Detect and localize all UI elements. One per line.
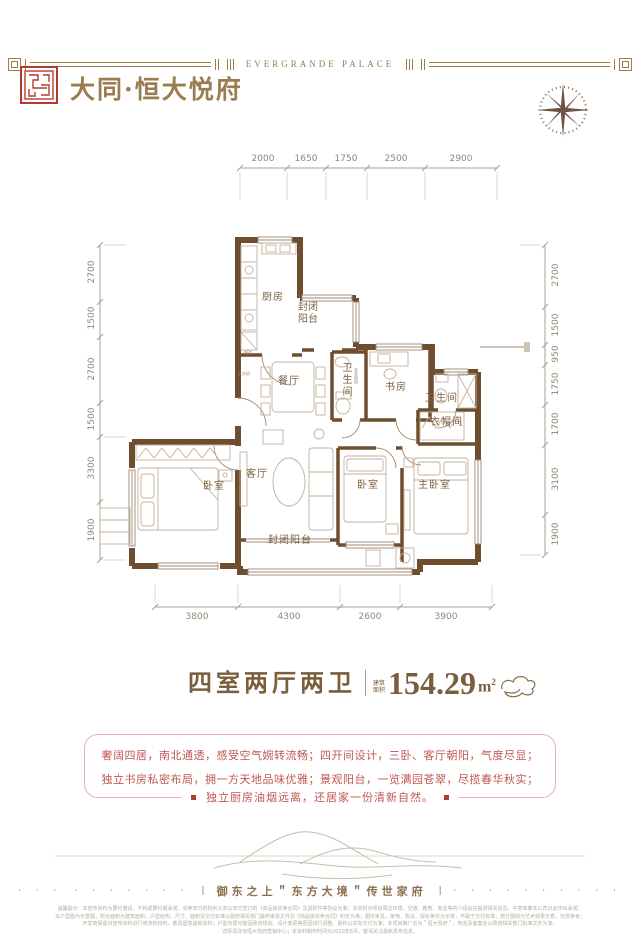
dim-label: 1650 <box>286 154 326 164</box>
slogan-dots-left-b: · · · · · · · <box>74 886 189 896</box>
disclaimer-line: 开发商保留对宣传资料进行修改的权利，敬请留意最新资料；户型布局可能因政府规划、设… <box>36 921 604 929</box>
dim-label: 4300 <box>269 612 309 622</box>
slogan-row: · · · · · · · · · · | 御东之上＂东方大境＂传世家府 | ·… <box>0 883 640 899</box>
neighbor-wall-stub <box>480 342 530 352</box>
mountain-sketch <box>0 822 640 888</box>
dim-label: 3300 <box>87 448 97 488</box>
area-prefix-bottom: 面积 <box>373 687 385 694</box>
dim-label: 2700 <box>551 255 561 295</box>
red-square-icon <box>444 795 449 800</box>
disclaimer: 温馨提示：本宣传资料为要约邀请，不构成要约或承诺，买卖双方的权利义务以双方签订的… <box>36 906 604 936</box>
unit-info-row: 四室两厅两卫 建筑 面积 154.29 m2 <box>188 663 538 698</box>
area-prefix-label: 建筑 面积 <box>373 680 385 694</box>
area-value: 154.29 <box>388 668 476 698</box>
poster-page: EVERGRANDE PALACE 大同·恒大悦府 <box>0 0 640 952</box>
room-label-balcony-top: 封闭阳台 <box>298 302 320 326</box>
room-label-bedroom-left: 卧室 <box>203 477 225 492</box>
dim-label: 3100 <box>551 459 561 499</box>
room-label-dining: 餐厅 <box>278 372 300 387</box>
dim-label: 2700 <box>87 252 97 292</box>
slogan-bar: | <box>202 886 205 896</box>
dim-label: 1700 <box>551 404 561 444</box>
disclaimer-line: 详情请详询恒大悦府营销中心；本资料制作时间为2020年8月，敬请关注最新发布信息… <box>36 929 604 937</box>
cloud-flourish-icon <box>498 672 538 698</box>
dim-label: 2900 <box>441 154 481 164</box>
room-label-closet: 衣帽间 <box>430 413 463 428</box>
room-note-bath1: 安全使用 <box>354 368 359 384</box>
dim-label: 2000 <box>243 154 283 164</box>
description-box: 奢阔四居，南北通透，感受空气婉转流畅；四开间设计，三卧、客厅朝阳，气度尽显； 独… <box>84 734 556 798</box>
area-unit: m2 <box>478 677 496 696</box>
dim-label: 2600 <box>350 612 390 622</box>
dim-label: 1500 <box>87 298 97 338</box>
dim-label: 2700 <box>87 349 97 389</box>
dim-label: 1750 <box>326 154 366 164</box>
unit-layout-title: 四室两厅两卫 <box>188 663 356 698</box>
room-label-kitchen: 厨房 <box>262 288 284 303</box>
dim-label: 3800 <box>177 612 217 622</box>
room-label-living: 客厅 <box>246 465 268 480</box>
room-label-bath1: 卫生间 <box>338 362 353 398</box>
slogan-text: 御东之上＂东方大境＂传世家府 <box>217 883 427 899</box>
room-label-balcony-bottom: 封闭阳台 <box>268 531 312 546</box>
room-note-water: 饮水机 <box>238 371 250 376</box>
description-bottom-row: 独立厨房油烟远离，还居家一份清新自然。 <box>85 789 555 805</box>
room-note-flue: 烟道 <box>244 350 252 355</box>
slogan-dots-left-a: · · · <box>18 886 62 896</box>
description-line-1: 奢阔四居，南北通透，感受空气婉转流畅；四开间设计，三卧、客厅朝阳，气度尽显； <box>101 744 539 768</box>
room-label-bath2: 卫生间 <box>425 389 458 404</box>
divider <box>365 670 366 696</box>
area-prefix-top: 建筑 <box>373 680 385 687</box>
windows <box>129 237 481 575</box>
description-line-3: 独立厨房油烟远离，还居家一份清新自然。 <box>206 789 434 805</box>
dim-label: 3900 <box>426 612 466 622</box>
dim-label: 2500 <box>376 154 416 164</box>
dim-label: 1500 <box>87 399 97 439</box>
room-label-bedroom-mid: 卧室 <box>357 476 379 491</box>
slogan-dots-right: · · · · · · · · · · <box>454 886 622 896</box>
room-label-master: 主卧室 <box>418 476 451 491</box>
furniture <box>100 243 476 568</box>
dim-label: 1900 <box>87 510 97 550</box>
red-square-icon <box>191 795 196 800</box>
disclaimer-line: 温馨提示：本宣传资料为要约邀请，不构成要约或承诺，买卖双方的权利义务以双方签订的… <box>36 906 604 914</box>
slogan-bar: | <box>439 886 442 896</box>
exterior-walls <box>132 240 478 572</box>
dim-label: 1900 <box>551 514 561 554</box>
room-label-study: 书房 <box>385 378 407 393</box>
dim-label: 1750 <box>551 364 561 404</box>
